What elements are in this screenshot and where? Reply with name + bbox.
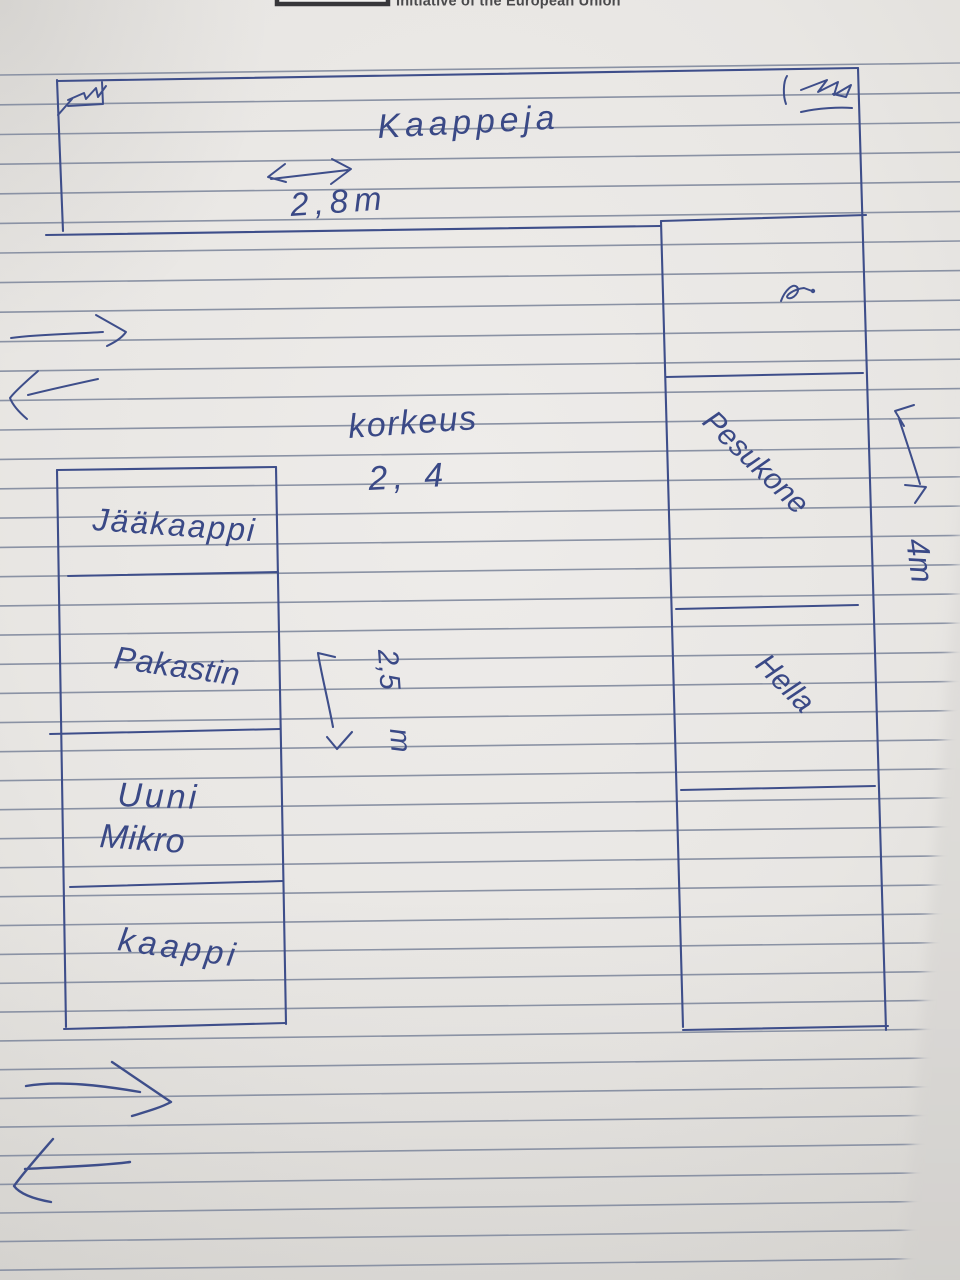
svg-text:Initiative of the European Uni: Initiative of the European Union (396, 0, 621, 10)
svg-text:2,5: 2,5 (371, 647, 406, 691)
svg-text:2, 4: 2, 4 (366, 456, 450, 498)
svg-text:Mikro: Mikro (98, 817, 186, 861)
svg-text:4m: 4m (899, 536, 941, 585)
svg-text:Uuni: Uuni (117, 776, 200, 817)
svg-text:m: m (383, 727, 417, 753)
svg-text:2,8m: 2,8m (288, 179, 389, 223)
